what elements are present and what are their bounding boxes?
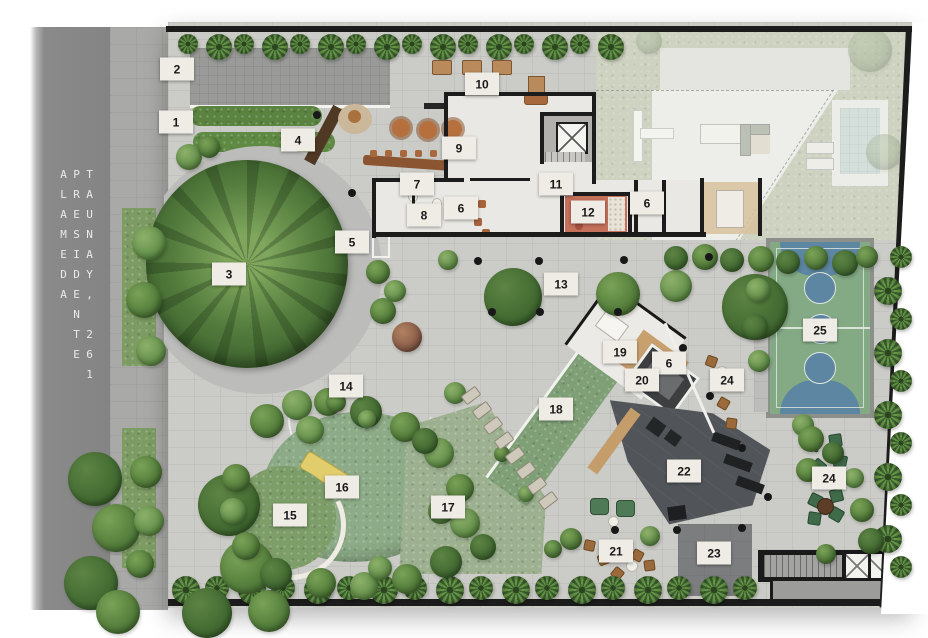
plan-marker: 23 bbox=[697, 542, 731, 565]
plan-marker: 7 bbox=[400, 173, 434, 196]
plan-marker: 12 bbox=[571, 201, 605, 224]
plan-marker: 14 bbox=[329, 375, 363, 398]
plan-marker: 9 bbox=[442, 137, 476, 160]
plan-marker: 3 bbox=[212, 263, 246, 286]
plan-marker: 1 bbox=[159, 111, 193, 134]
street-name-label: ALAMEDA PRESIDENTE TAUNAY, 261 bbox=[57, 168, 96, 488]
site-plan: ALAMEDA PRESIDENTE TAUNAY, 261 bbox=[0, 0, 928, 638]
markers-layer: 1234566678910111213141516171819202122232… bbox=[0, 0, 928, 638]
plan-marker: 24 bbox=[710, 369, 744, 392]
plan-marker: 19 bbox=[603, 341, 637, 364]
plan-marker: 13 bbox=[544, 273, 578, 296]
plan-marker: 15 bbox=[273, 504, 307, 527]
plan-marker: 2 bbox=[160, 58, 194, 81]
plan-marker: 18 bbox=[539, 398, 573, 421]
plan-marker: 5 bbox=[335, 231, 369, 254]
plan-marker: 16 bbox=[325, 476, 359, 499]
plan-marker: 4 bbox=[281, 129, 315, 152]
plan-marker: 22 bbox=[667, 460, 701, 483]
site-plan-page: ALAMEDA PRESIDENTE TAUNAY, 261 bbox=[0, 0, 928, 638]
plan-marker: 17 bbox=[431, 496, 465, 519]
plan-marker: 25 bbox=[803, 319, 837, 342]
plan-marker: 24 bbox=[812, 467, 846, 490]
plan-marker: 6 bbox=[444, 197, 478, 220]
plan-marker: 11 bbox=[539, 173, 573, 196]
plan-marker: 21 bbox=[599, 540, 633, 563]
plan-marker: 10 bbox=[465, 73, 499, 96]
plan-marker: 20 bbox=[625, 369, 659, 392]
plan-marker: 6 bbox=[630, 192, 664, 215]
plan-marker: 8 bbox=[407, 204, 441, 227]
